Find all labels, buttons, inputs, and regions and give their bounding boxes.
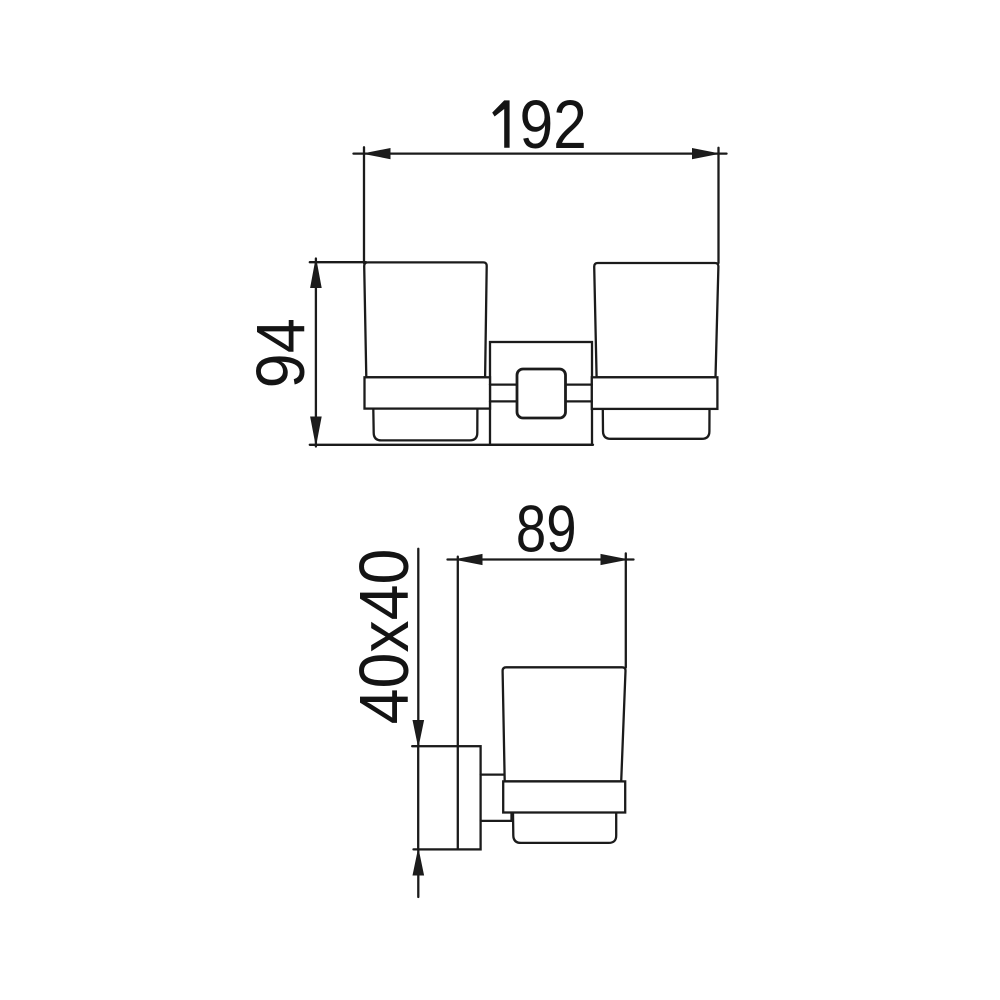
svg-text:94: 94 — [242, 318, 319, 388]
svg-text:92: 92 — [519, 85, 586, 163]
svg-text:89: 89 — [516, 491, 577, 565]
svg-text:40x40: 40x40 — [345, 549, 423, 725]
